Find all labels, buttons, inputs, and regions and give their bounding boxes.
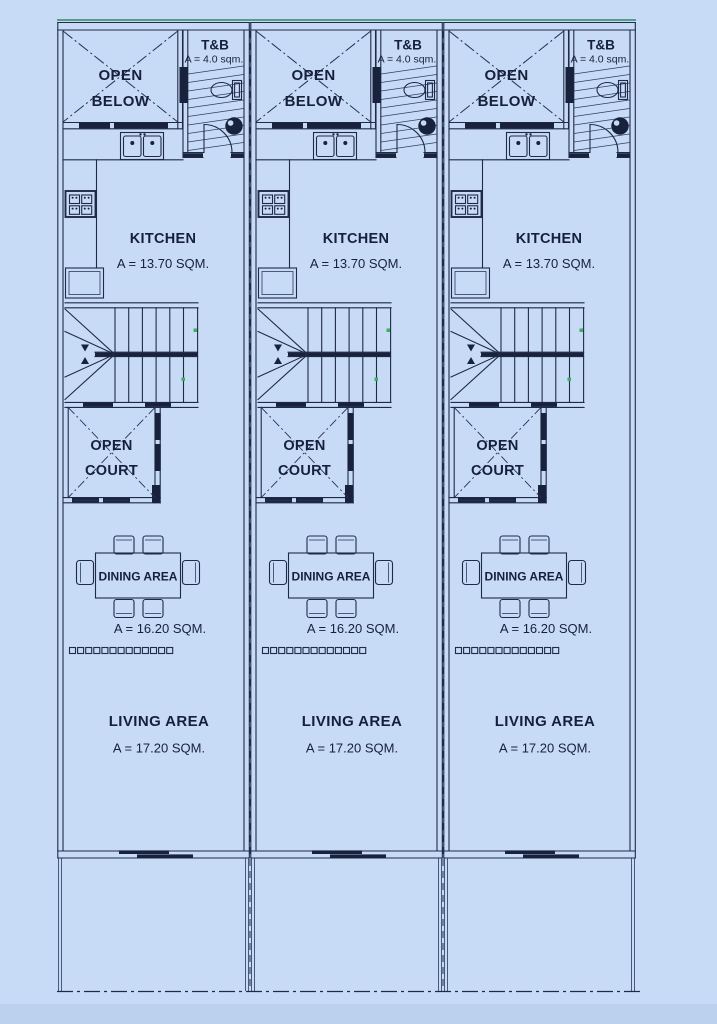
- open-court-label: COURT: [471, 463, 524, 479]
- tb-label: T&B: [201, 38, 229, 53]
- floor-plan-drawing: OPEN BELOW T&B A = 4.0 sqm. KITCHEN A = …: [0, 0, 717, 1024]
- living-area-label: A = 17.20 SQM.: [499, 741, 591, 756]
- living-area-label: A = 17.20 SQM.: [306, 741, 398, 756]
- open-court-label: OPEN: [283, 438, 325, 454]
- dining-label: DINING AREA: [292, 570, 371, 584]
- tb-area-label: A = 4.0 sqm.: [378, 54, 437, 66]
- paper-background: [0, 0, 717, 1024]
- tb-area-label: A = 4.0 sqm.: [571, 54, 630, 66]
- kitchen-area-label: A = 13.70 SQM.: [310, 256, 402, 271]
- dining-area-label: A = 16.20 SQM.: [307, 621, 399, 636]
- open-below-label: BELOW: [285, 93, 343, 110]
- open-below-label: BELOW: [478, 93, 536, 110]
- open-court-label: COURT: [85, 463, 138, 479]
- living-label: LIVING AREA: [109, 713, 210, 730]
- dining-area-label: A = 16.20 SQM.: [500, 621, 592, 636]
- living-area-label: A = 17.20 SQM.: [113, 741, 205, 756]
- open-court-label: COURT: [278, 463, 331, 479]
- living-label: LIVING AREA: [302, 713, 403, 730]
- kitchen-label: KITCHEN: [130, 231, 197, 247]
- tb-area-label: A = 4.0 sqm.: [185, 54, 244, 66]
- floor-plan-canvas: OPEN BELOW T&B A = 4.0 sqm. KITCHEN A = …: [0, 0, 717, 1024]
- bottom-shade-band: [0, 1004, 717, 1024]
- dining-area-label: A = 16.20 SQM.: [114, 621, 206, 636]
- open-court-label: OPEN: [90, 438, 132, 454]
- tb-label: T&B: [587, 38, 615, 53]
- dining-label: DINING AREA: [99, 570, 178, 584]
- open-below-label: OPEN: [484, 67, 528, 84]
- open-below-label: OPEN: [98, 67, 142, 84]
- open-court-label: OPEN: [476, 438, 518, 454]
- open-below-label: OPEN: [291, 67, 335, 84]
- dining-label: DINING AREA: [485, 570, 564, 584]
- kitchen-area-label: A = 13.70 SQM.: [503, 256, 595, 271]
- open-below-label: BELOW: [92, 93, 150, 110]
- tb-label: T&B: [394, 38, 422, 53]
- kitchen-label: KITCHEN: [323, 231, 390, 247]
- living-label: LIVING AREA: [495, 713, 596, 730]
- kitchen-label: KITCHEN: [516, 231, 583, 247]
- kitchen-area-label: A = 13.70 SQM.: [117, 256, 209, 271]
